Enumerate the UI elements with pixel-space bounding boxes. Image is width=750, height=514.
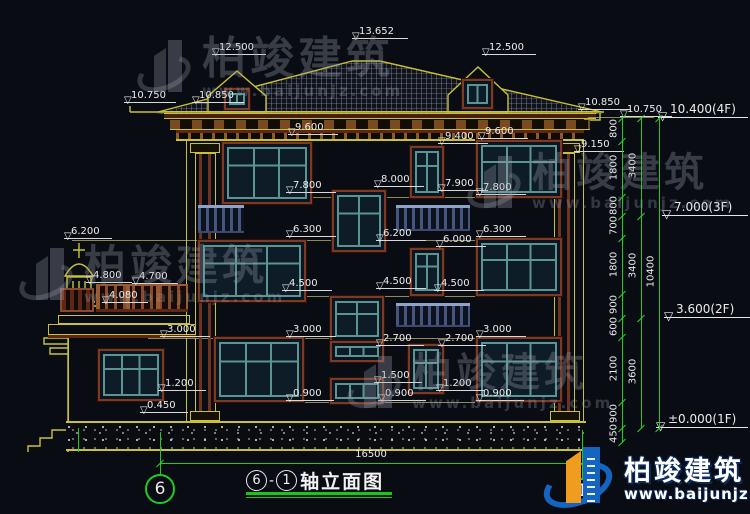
juliet-railing [198, 205, 244, 233]
title-axis-end: 1 [276, 470, 297, 491]
elevation-marker: 12.500 ▽ [482, 42, 536, 55]
pilaster-capital-left [190, 143, 220, 153]
title-underline [246, 497, 392, 498]
elevation-leader-line [662, 215, 748, 216]
elevation-triangle-icon: ▽ [664, 311, 673, 321]
elevation-triangle-icon: ▽ [438, 339, 446, 349]
cornice-top-line [164, 111, 596, 112]
elevation-marker: 4.500 ▽ [376, 276, 426, 289]
elevation-triangle-icon: ▽ [140, 406, 148, 416]
logo-building-icon [566, 451, 581, 503]
dimension-chain-line [622, 118, 623, 442]
dimension-value: 10400 [646, 242, 657, 302]
elevation-triangle-icon: ▽ [376, 339, 384, 349]
elevation-marker: 6.200 ▽ [64, 226, 112, 239]
elevation-marker: 3.000 ▽ [160, 324, 210, 337]
elevation-value: 3.600(2F) [664, 303, 750, 316]
stone-plinth [66, 421, 586, 451]
pilaster-base-right [550, 411, 580, 421]
annex-window [98, 349, 164, 401]
window-glass [103, 354, 159, 396]
window-glass [335, 301, 379, 337]
elevation-marker: 7.000(3F) ▽ [662, 201, 748, 216]
window-glass [335, 346, 379, 357]
dormer-window-right [462, 79, 493, 109]
elevation-triangle-icon: ▽ [436, 240, 444, 250]
elevation-triangle-icon: ▽ [286, 394, 294, 404]
dimension-chain-line [659, 118, 660, 428]
elevation-leader-line [482, 54, 536, 55]
elevation-triangle-icon: ▽ [476, 188, 484, 198]
elevation-value: ±0.000(1F) [656, 413, 748, 426]
elevation-marker: 10.400(4F) ▽ [658, 103, 748, 118]
elevation-triangle-icon: ▽ [374, 180, 382, 190]
dimension-chain-line [641, 118, 642, 428]
elevation-triangle-icon: ▽ [376, 234, 384, 244]
elevation-value: 10.400(4F) [658, 103, 748, 116]
logo-name: 柏竣建筑 [624, 449, 744, 488]
elevation-marker: 10.850 ▽ [192, 90, 244, 103]
elevation-marker: 2.700 ▽ [376, 333, 424, 346]
dimension-value: 3600 [628, 342, 639, 402]
elevation-triangle-icon: ▽ [158, 384, 166, 394]
axis-line-6 [160, 432, 161, 474]
watermark-building-icon [168, 40, 182, 92]
elevation-triangle-icon: ▽ [286, 330, 294, 340]
elevation-leader-line [212, 54, 266, 55]
elevation-triangle-icon: ▽ [124, 96, 132, 106]
title-text: 轴立面图 [300, 467, 384, 494]
elevation-marker: 0.900 ▽ [476, 388, 524, 401]
elevation-triangle-icon: ▽ [574, 145, 582, 155]
elevation-triangle-icon: ▽ [192, 96, 200, 106]
elevation-marker: 4.700 ▽ [132, 271, 178, 284]
logo-building-icon [583, 447, 600, 503]
elevation-triangle-icon: ▽ [662, 209, 671, 219]
elevation-triangle-icon: ▽ [352, 32, 360, 42]
elevation-triangle-icon: ▽ [288, 128, 296, 138]
dimension-value: 3400 [628, 136, 639, 196]
dimension-value: 16500 [341, 449, 401, 460]
watermark-building-icon [154, 48, 166, 92]
elevation-marker: 9.400 ▽ [438, 131, 488, 144]
elevation-triangle-icon: ▽ [64, 232, 72, 242]
elevation-marker: 6.300 ▽ [286, 224, 336, 237]
elevation-marker: 6.200 ▽ [376, 228, 426, 241]
elevation-triangle-icon: ▽ [160, 330, 168, 340]
elevation-marker: 13.652 ▽ [352, 26, 408, 39]
window-glass [467, 84, 488, 104]
elevation-marker: 1.200 ▽ [158, 378, 206, 391]
elevation-value: 12.500 [482, 42, 536, 53]
elevation-triangle-icon: ▽ [286, 186, 294, 196]
elevation-triangle-icon: ▽ [482, 48, 490, 58]
elevation-marker: 1.500 ▽ [374, 370, 422, 383]
window-glass [481, 243, 557, 291]
drawing-title: 6 - 1 轴立面图 [246, 467, 384, 494]
dimension-value: 3400 [628, 236, 639, 296]
elevation-marker: 3.000 ▽ [286, 324, 336, 337]
elevation-marker: 2.700 ▽ [438, 333, 486, 346]
elevation-triangle-icon: ▽ [282, 284, 290, 294]
elevation-triangle-icon: ▽ [376, 282, 384, 292]
axis-stub [78, 428, 79, 452]
entry-steps [28, 430, 68, 452]
title-underline [246, 492, 392, 495]
elevation-marker: 0.450 ▽ [140, 400, 188, 413]
cornice-fascia [164, 113, 596, 119]
watermark-building-icon [36, 256, 48, 300]
elevation-drawing-canvas: 13.652 ▽ 12.500 ▽ 12.500 ▽ 10.750 ▽ 10.8… [0, 0, 750, 514]
window-3f-left [222, 142, 312, 204]
annex-cornice-upper [58, 315, 190, 324]
elevation-marker: 8.000 ▽ [374, 174, 424, 187]
elevation-triangle-icon: ▽ [132, 277, 140, 287]
elevation-marker: 10.750 ▽ [124, 90, 176, 103]
window-2f-right [476, 238, 562, 296]
elevation-marker: 7.800 ▽ [476, 182, 526, 195]
elevation-value: 7.000(3F) [662, 201, 748, 214]
annex-parapet-box [60, 288, 94, 312]
elevation-triangle-icon: ▽ [438, 184, 446, 194]
elevation-marker: 7.800 ▽ [286, 180, 336, 193]
side-bracket [44, 338, 68, 354]
bottom-dimension-line [160, 463, 582, 464]
elevation-triangle-icon: ▽ [434, 284, 442, 294]
elevation-leader-line [658, 117, 748, 118]
elevation-marker: 0.900 ▽ [286, 388, 334, 401]
elevation-leader-line [352, 38, 408, 39]
elevation-triangle-icon: ▽ [374, 376, 382, 386]
elevation-marker: 12.500 ▽ [212, 42, 266, 55]
pilaster-base-left [190, 411, 220, 421]
elevation-marker: ±0.000(1F) ▽ [656, 413, 748, 428]
elevation-marker: 6.000 ▽ [436, 234, 486, 247]
window-glass [335, 383, 379, 399]
elevation-marker: 3.600(2F) ▽ [664, 303, 750, 318]
brand-logo: 柏竣建筑 www.baijunjz.com [540, 447, 750, 511]
logo-url: www.baijunjz.com [624, 485, 750, 503]
elevation-triangle-icon: ▽ [578, 103, 586, 113]
juliet-railing [396, 303, 470, 327]
elevation-marker: 4.500 ▽ [434, 278, 484, 291]
elevation-triangle-icon: ▽ [378, 394, 386, 404]
elevation-leader-line [656, 427, 748, 428]
elevation-triangle-icon: ▽ [212, 48, 220, 58]
elevation-marker: 4.080 ▽ [102, 290, 148, 303]
elevation-marker: 4.500 ▽ [282, 278, 332, 291]
elevation-triangle-icon: ▽ [476, 394, 484, 404]
title-dash: - [269, 473, 274, 489]
elevation-leader-line [664, 317, 750, 318]
elevation-triangle-icon: ▽ [86, 276, 94, 286]
elevation-triangle-icon: ▽ [436, 384, 444, 394]
elevation-marker: 4.800 ▽ [86, 270, 132, 283]
elevation-triangle-icon: ▽ [102, 296, 110, 306]
elevation-value: 13.652 [352, 26, 408, 37]
elevation-marker: 0.900 ▽ [378, 388, 426, 401]
elevation-triangle-icon: ▽ [438, 137, 446, 147]
turret-finial [73, 243, 85, 258]
window-glass [337, 195, 381, 247]
axis-bubble-6: 6 [145, 474, 175, 504]
elevation-marker: 9.600 ▽ [288, 122, 338, 135]
elevation-triangle-icon: ▽ [286, 230, 294, 240]
title-axis-start: 6 [246, 470, 267, 491]
elevation-value: 12.500 [212, 42, 266, 53]
